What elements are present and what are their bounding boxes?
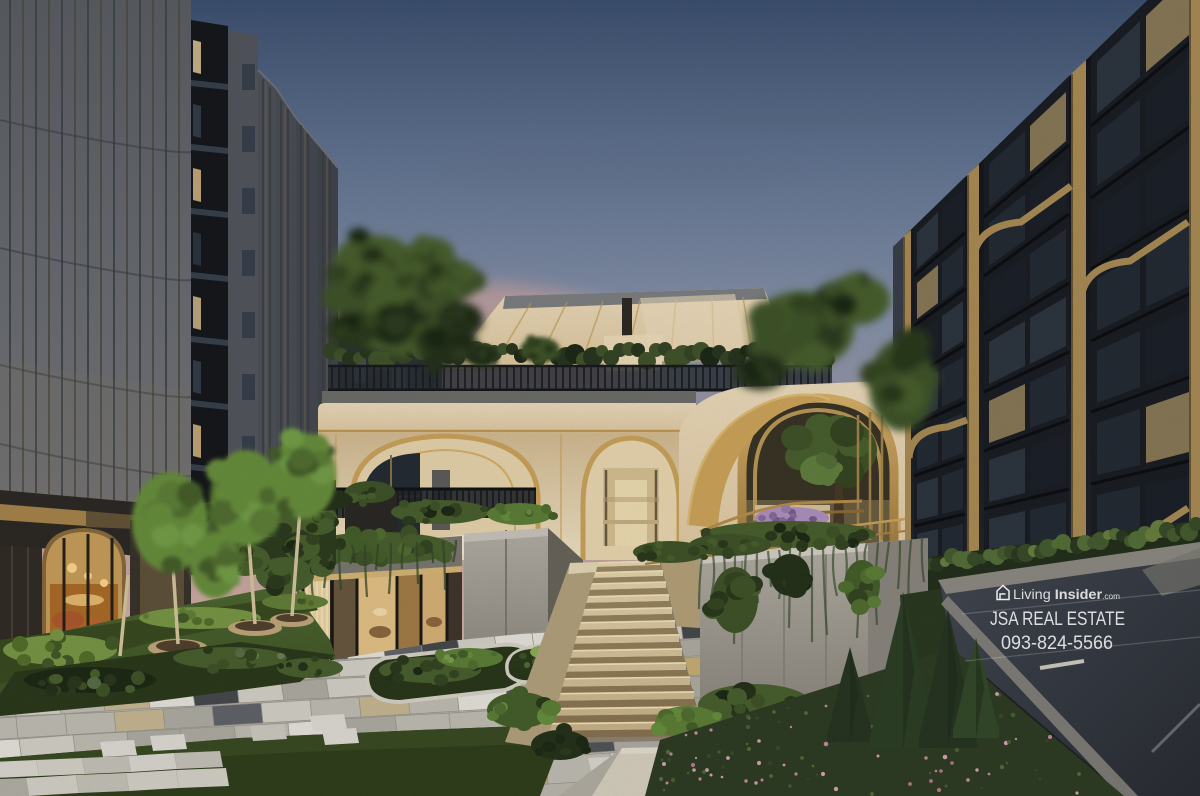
- svg-text:JSA REAL ESTATE: JSA REAL ESTATE: [990, 609, 1125, 630]
- svg-text:093-824-5566: 093-824-5566: [1001, 633, 1113, 654]
